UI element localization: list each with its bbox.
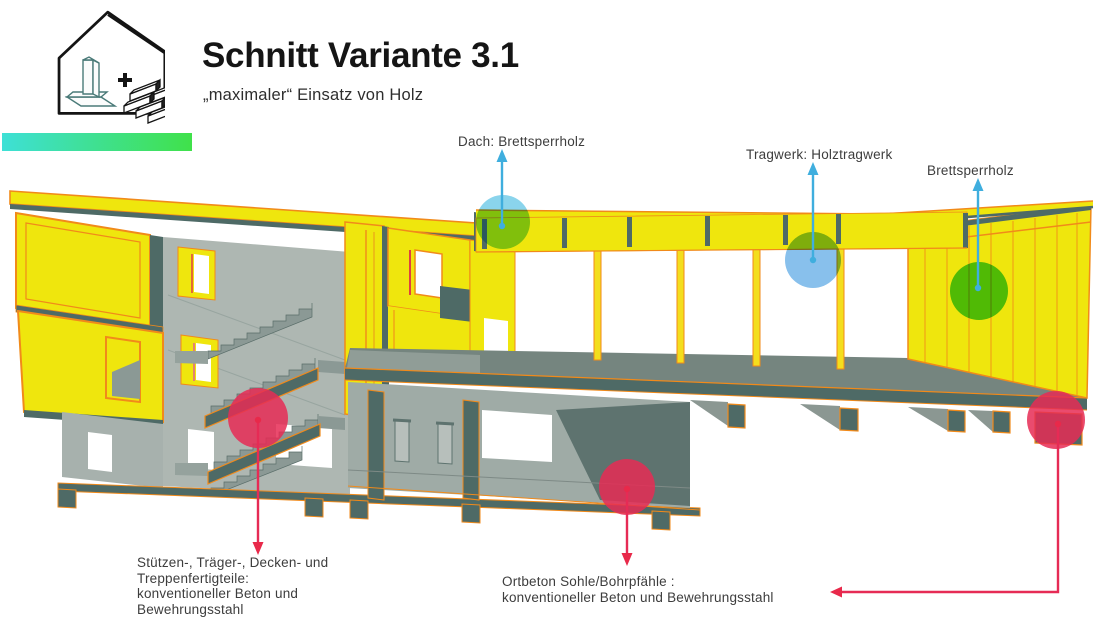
- annotation-brettsperrholz-label: Brettsperrholz: [927, 163, 1014, 179]
- annotation-stuetzen-label: Stützen-, Träger-, Decken- und Treppenfe…: [137, 555, 328, 617]
- annotation-tragwerk-label: Tragwerk: Holztragwerk: [746, 147, 892, 163]
- building-section-illustration: [0, 0, 1101, 628]
- annotation-ortbeton-label: Ortbeton Sohle/Bohrpfähle : konventionel…: [502, 574, 774, 605]
- slide-canvas: Schnitt Variante 3.1 „maximaler“ Einsatz…: [0, 0, 1101, 628]
- annotation-dach-label: Dach: Brettsperrholz: [458, 134, 585, 150]
- bohrpfaehle-arrow: [830, 421, 1061, 598]
- bohrpfaehle-highlight-circle: [1027, 391, 1085, 449]
